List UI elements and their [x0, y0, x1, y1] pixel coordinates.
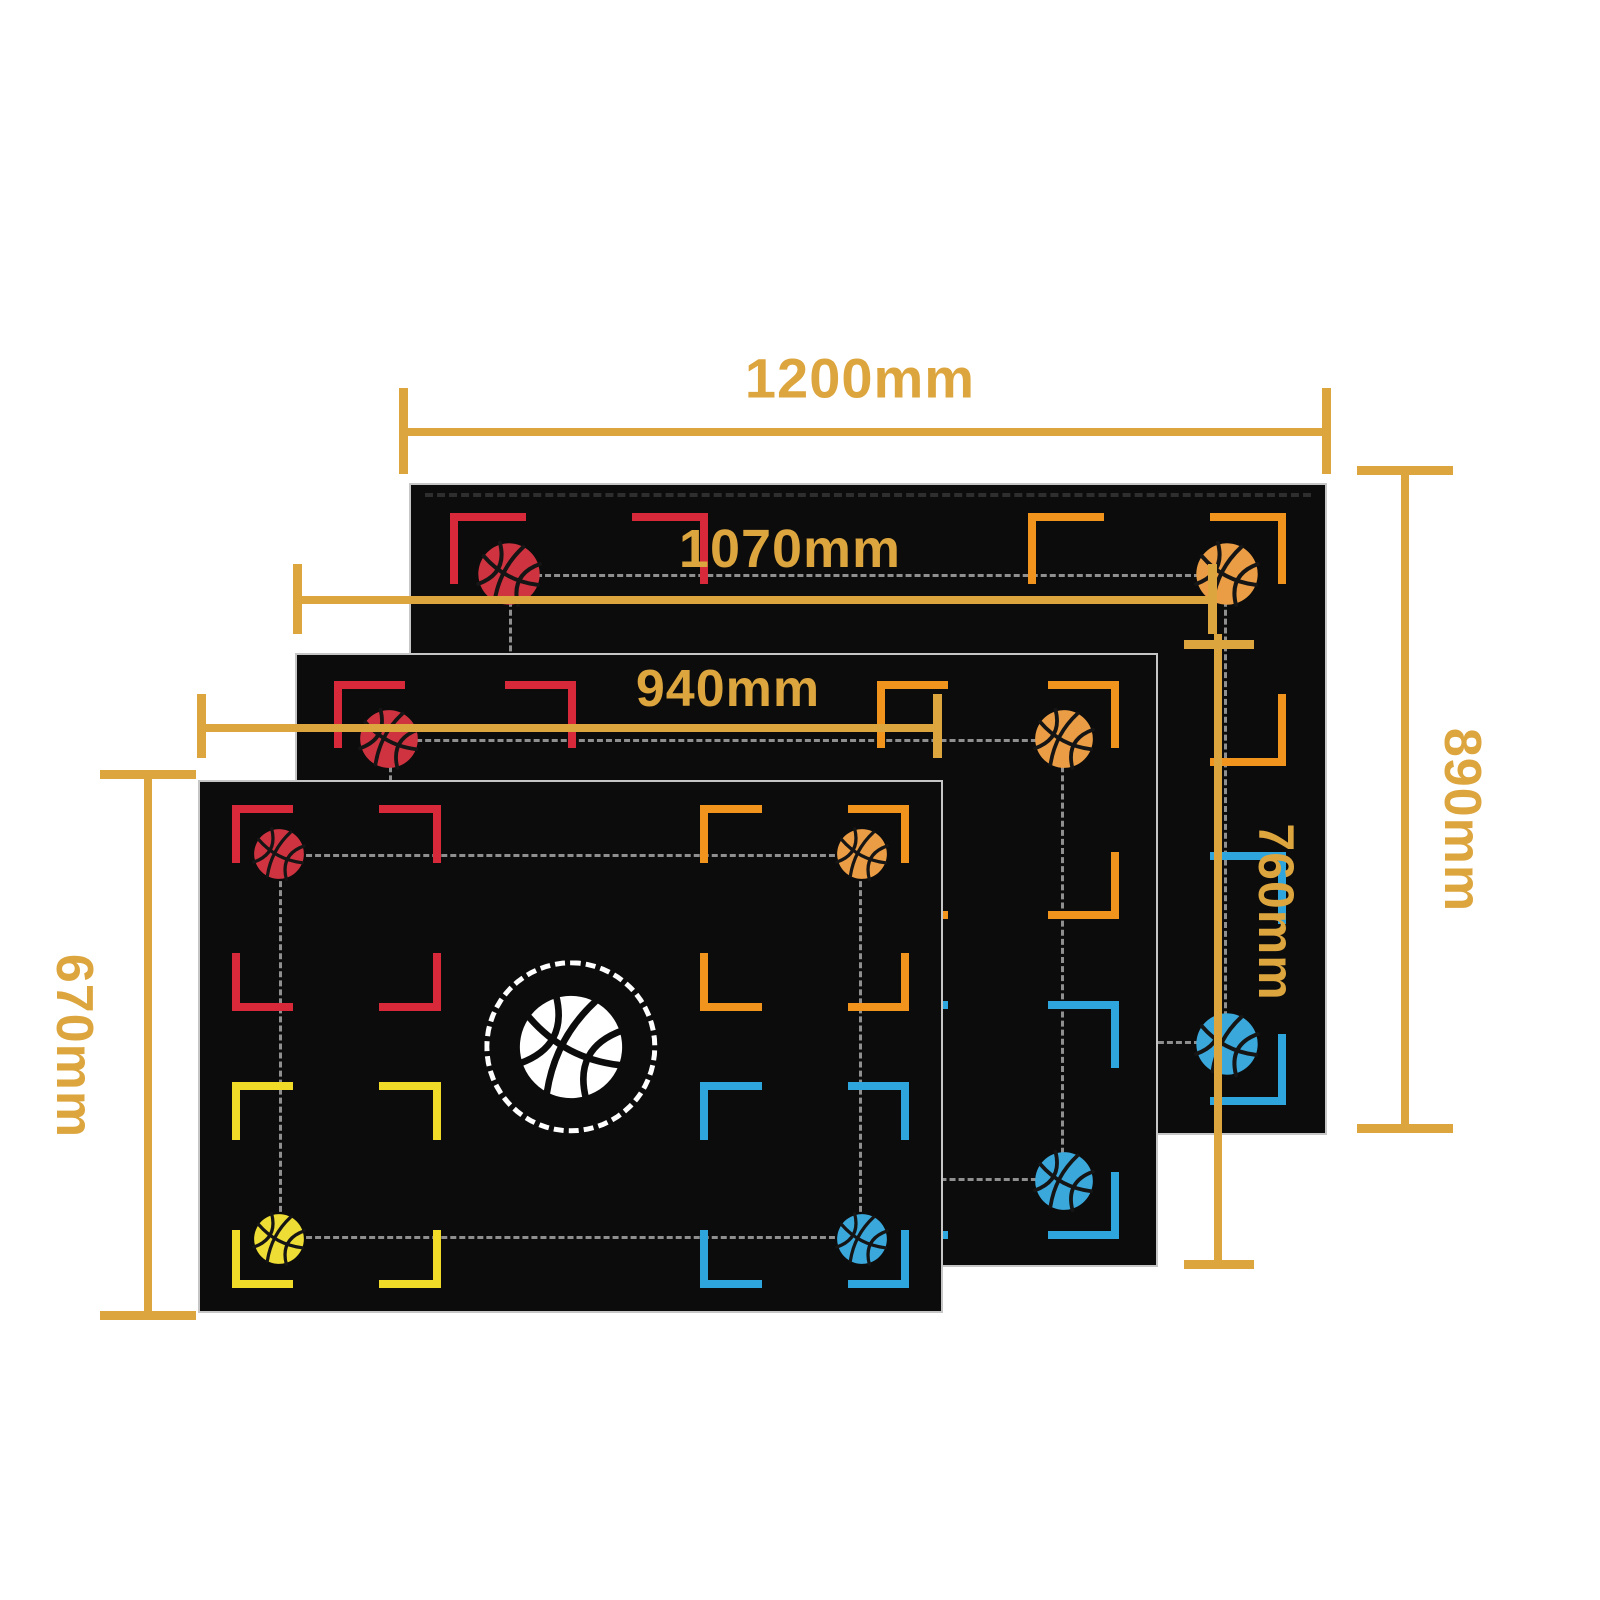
size-diagram: 1200mm 1070mm 940mm 670mm 890mm 760mm — [0, 0, 1600, 1600]
bracket-red-bottom-left — [232, 953, 294, 1011]
bracket-orange-top-left — [1028, 513, 1104, 584]
dimension-tick — [1184, 640, 1254, 649]
basketball-icon-orange — [1033, 707, 1096, 770]
dimension-tick — [1184, 1260, 1254, 1269]
dimension-tick — [100, 1311, 196, 1320]
dimension-label-760: 760mm — [1247, 823, 1305, 1000]
dimension-tick — [1357, 1124, 1453, 1133]
dimension-line — [402, 428, 1328, 436]
bracket-orange-bottom-right — [1048, 852, 1119, 919]
dimension-tick — [1357, 466, 1453, 475]
bracket-yellow-top-right — [379, 1082, 441, 1140]
dimension-label-940: 940mm — [636, 659, 820, 719]
dimension-line — [200, 724, 940, 732]
bracket-yellow-bottom-right — [379, 1230, 441, 1288]
dimension-tick — [1322, 388, 1331, 474]
basketball-icon-blue — [835, 1211, 889, 1265]
bracket-orange-bottom-right — [848, 953, 910, 1011]
mat-edge-stitch-dashes — [425, 493, 1311, 497]
dimension-tick — [100, 770, 196, 779]
dimension-tick — [399, 388, 408, 474]
center-basketball-icon — [515, 991, 626, 1102]
bracket-blue-top-right — [1048, 1001, 1119, 1068]
dimension-label-1070: 1070mm — [679, 518, 901, 580]
dimension-tick — [933, 694, 942, 758]
basketball-icon-yellow — [252, 1211, 306, 1265]
bracket-orange-top-left — [700, 805, 762, 863]
bracket-red-top-right — [505, 681, 576, 748]
basketball-icon-red — [252, 827, 306, 881]
dimension-line — [144, 774, 152, 1316]
basketball-icon-blue — [1194, 1011, 1261, 1078]
dimension-line — [1401, 470, 1409, 1130]
bracket-blue-top-right — [848, 1082, 910, 1140]
dimension-tick — [197, 694, 206, 758]
dimension-tick — [293, 564, 302, 634]
bracket-red-top-right — [379, 805, 441, 863]
bracket-yellow-top-left — [232, 1082, 294, 1140]
dimension-line — [296, 596, 1213, 604]
dimension-line — [1214, 634, 1222, 1266]
basketball-icon-red — [358, 707, 421, 770]
dimension-label-1200: 1200mm — [745, 346, 975, 411]
dimension-tick — [1208, 564, 1217, 634]
dimension-label-890: 890mm — [1432, 728, 1492, 912]
bracket-red-bottom-right — [379, 953, 441, 1011]
mat-smallest — [198, 780, 943, 1313]
basketball-icon-orange — [835, 827, 889, 881]
dimension-label-670: 670mm — [44, 954, 104, 1138]
bracket-blue-bottom-left — [700, 1230, 762, 1288]
basketball-icon-blue — [1033, 1150, 1096, 1213]
bracket-orange-bottom-left — [700, 953, 762, 1011]
bracket-blue-top-left — [700, 1082, 762, 1140]
